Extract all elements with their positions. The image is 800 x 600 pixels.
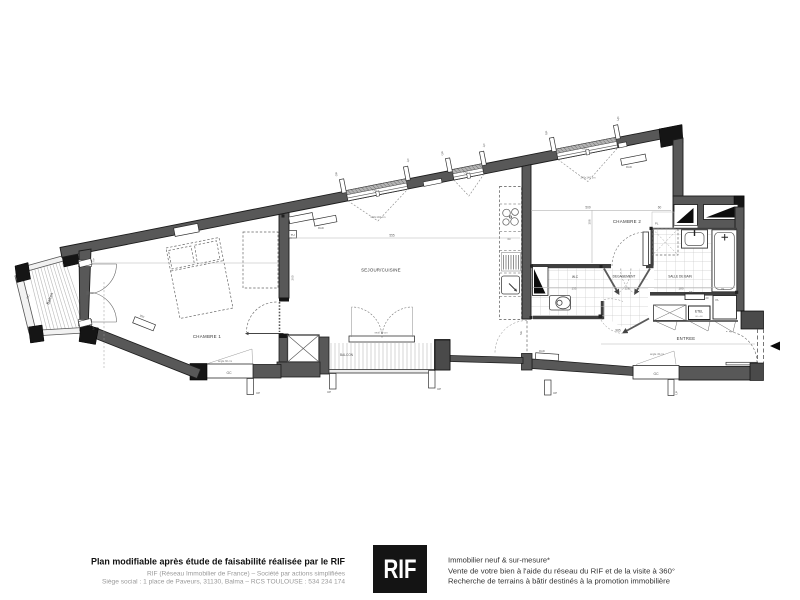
svg-text:RIF (Réseau Immobilier de Fran: RIF (Réseau Immobilier de France) – Soci…: [147, 571, 345, 578]
svg-text:UP: UP: [553, 391, 557, 395]
svg-text:985: 985: [615, 329, 621, 333]
svg-text:Recherche de terrains à bâtir: Recherche de terrains à bâtir destinés à…: [448, 577, 670, 586]
svg-text:RAD: RAD: [318, 226, 324, 230]
svg-text:Siège social : 1 place de Pave: Siège social : 1 place de Paveurs, 31130…: [102, 579, 345, 586]
svg-text:UP: UP: [437, 387, 441, 391]
svg-text:260: 260: [291, 275, 295, 280]
svg-text:140x140 cm: 140x140 cm: [370, 215, 386, 219]
svg-text:180: 180: [678, 286, 683, 290]
svg-text:W.C: W.C: [572, 275, 579, 279]
svg-text:308: 308: [588, 219, 592, 224]
svg-text:UP: UP: [544, 130, 549, 135]
svg-text:PL: PL: [716, 298, 720, 302]
svg-text:Immobilier neuf & sur-mesure*: Immobilier neuf & sur-mesure*: [448, 556, 550, 565]
svg-text:UP: UP: [256, 391, 260, 395]
svg-text:LP: LP: [482, 143, 487, 147]
svg-text:ENTREE: ENTREE: [677, 336, 696, 341]
svg-text:UP: UP: [327, 390, 331, 394]
svg-text:RAD: RAD: [626, 165, 632, 169]
svg-text:DEGAGEMENT: DEGAGEMENT: [613, 275, 636, 279]
svg-text:UP: UP: [616, 116, 621, 121]
svg-text:140x140 cm: 140x140 cm: [580, 176, 596, 180]
svg-text:DS: DS: [689, 290, 693, 294]
svg-text:ETEL: ETEL: [695, 310, 703, 314]
svg-text:angle 43 cm: angle 43 cm: [650, 352, 664, 356]
svg-text:LP: LP: [406, 158, 411, 162]
svg-text:seuil 70 cm: seuil 70 cm: [374, 331, 387, 335]
svg-text:UP: UP: [334, 172, 339, 177]
svg-text:RAD: RAD: [539, 349, 545, 353]
svg-text:60: 60: [507, 237, 511, 241]
svg-text:UP: UP: [440, 151, 445, 156]
svg-text:GC: GC: [226, 371, 232, 375]
svg-text:135: 135: [571, 286, 576, 290]
svg-text:Vente de votre bien à l'aide d: Vente de votre bien à l'aide du réseau d…: [448, 567, 675, 576]
svg-text:Plan modifiable après étude de: Plan modifiable après étude de faisabili…: [91, 557, 345, 567]
svg-text:PL: PL: [655, 222, 659, 226]
svg-text:SALLE DE BAIN: SALLE DE BAIN: [668, 275, 692, 279]
svg-text:BALCON: BALCON: [340, 353, 354, 357]
svg-text:SEJOUR/CUISINE: SEJOUR/CUISINE: [361, 268, 401, 273]
svg-text:GC: GC: [653, 372, 659, 376]
svg-text:555: 555: [389, 234, 395, 238]
svg-text:509: 509: [585, 206, 591, 210]
svg-text:TU: TU: [291, 233, 295, 237]
svg-text:70: 70: [721, 287, 725, 291]
svg-text:120: 120: [624, 286, 629, 290]
svg-text:angle 60 cm: angle 60 cm: [218, 359, 232, 363]
svg-text:CHAMBRE 1: CHAMBRE 1: [193, 334, 222, 339]
svg-text:CHAMBRE 2: CHAMBRE 2: [613, 219, 642, 224]
svg-text:60: 60: [658, 206, 662, 210]
svg-text:RIF: RIF: [384, 554, 417, 584]
svg-text:SE: SE: [519, 331, 523, 335]
svg-text:60 x 60: 60 x 60: [695, 316, 703, 318]
